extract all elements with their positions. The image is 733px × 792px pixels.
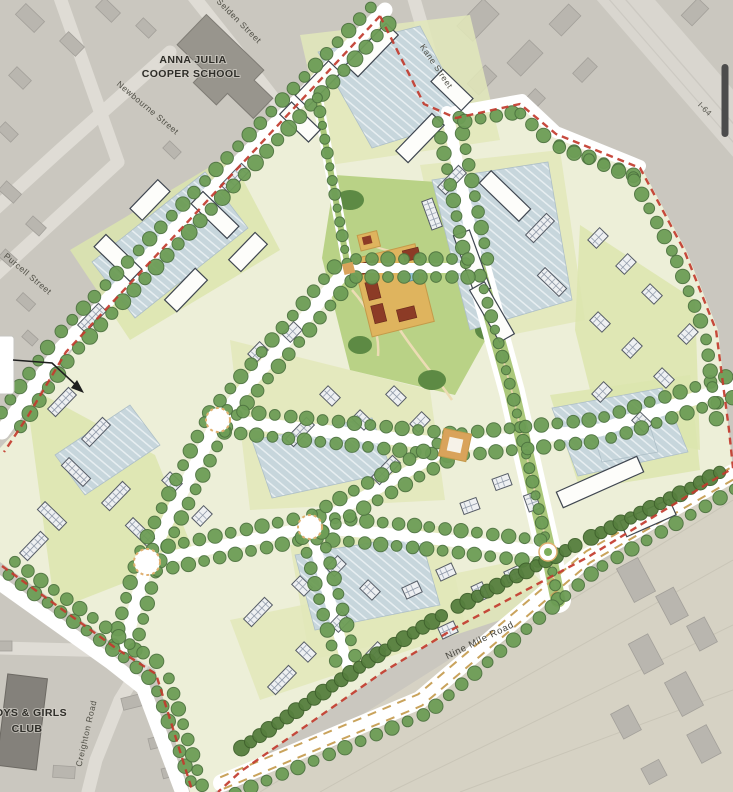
club-label-line1: BOYS & GIRLS [0,707,67,719]
plan-viewer: ANNA JULIA COOPER SCHOOL BOYS & GIRLS CL… [0,0,733,792]
school-label-line2: COOPER SCHOOL [142,68,241,80]
scrollbar-thumb[interactable] [722,64,729,137]
site-plan-map: ANNA JULIA COOPER SCHOOL BOYS & GIRLS CL… [0,0,733,792]
school-label-line1: ANNA JULIA [159,54,226,66]
club-label-line2: CLUB [12,723,43,735]
callout-box [0,336,14,394]
